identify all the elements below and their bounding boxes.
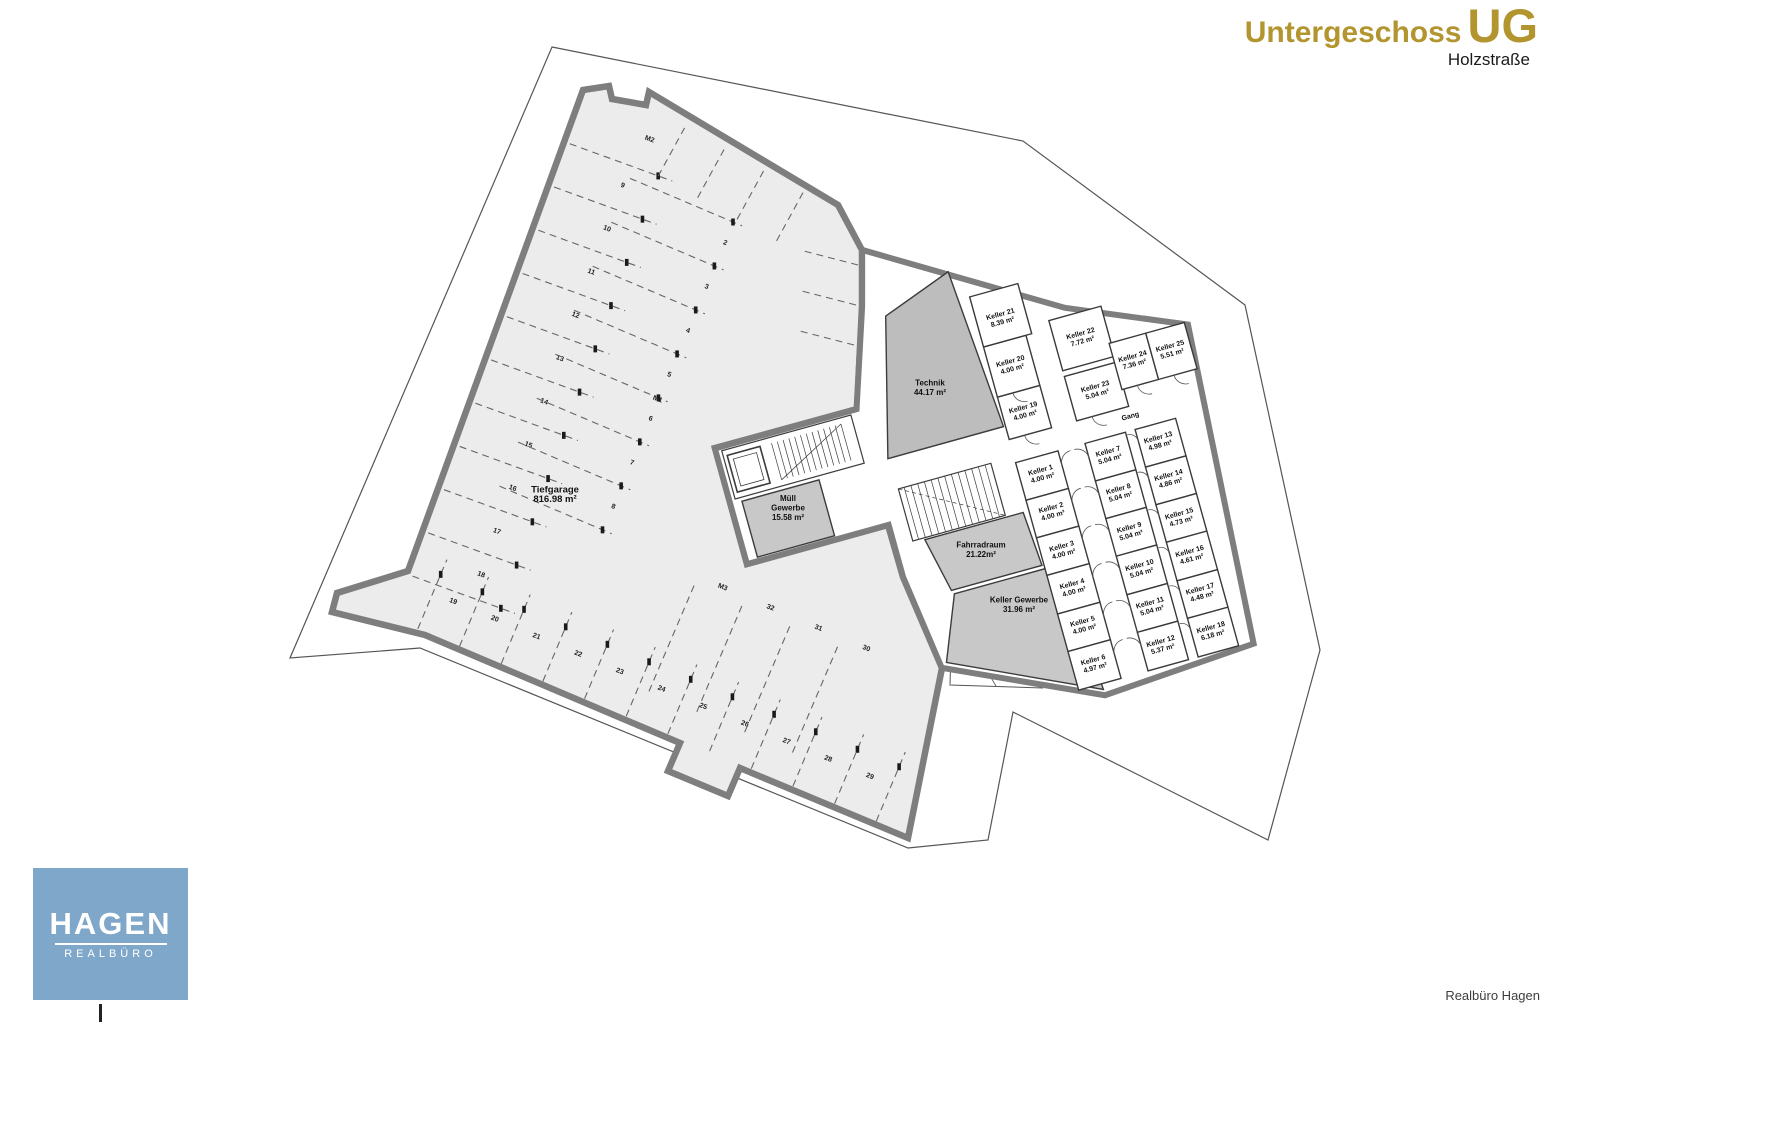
logo-name: HAGEN <box>50 908 172 939</box>
credit-text: Realbüro Hagen <box>1445 988 1540 1003</box>
zone-label-technik: Technik44.17 m² <box>914 379 946 398</box>
floorplan-canvas: 91011121314151617182345678M2M11920212223… <box>0 0 1770 1145</box>
logo-divider <box>55 943 167 945</box>
page-subtitle: Holzstraße <box>1245 51 1538 68</box>
floorplan-page: 91011121314151617182345678M2M11920212223… <box>0 0 1770 1145</box>
title-block: UntergeschossUG Holzstraße <box>1245 2 1538 68</box>
page-title-abbr: UG <box>1468 0 1539 52</box>
page-title: Untergeschoss <box>1245 16 1462 49</box>
hagen-logo: HAGEN REALBÜRO <box>33 868 188 1000</box>
zone-label-tiefgarage: Tiefgarage816.98 m² <box>531 485 579 506</box>
logo-subtitle: REALBÜRO <box>64 948 157 960</box>
logo-tick-mark <box>99 1004 102 1022</box>
